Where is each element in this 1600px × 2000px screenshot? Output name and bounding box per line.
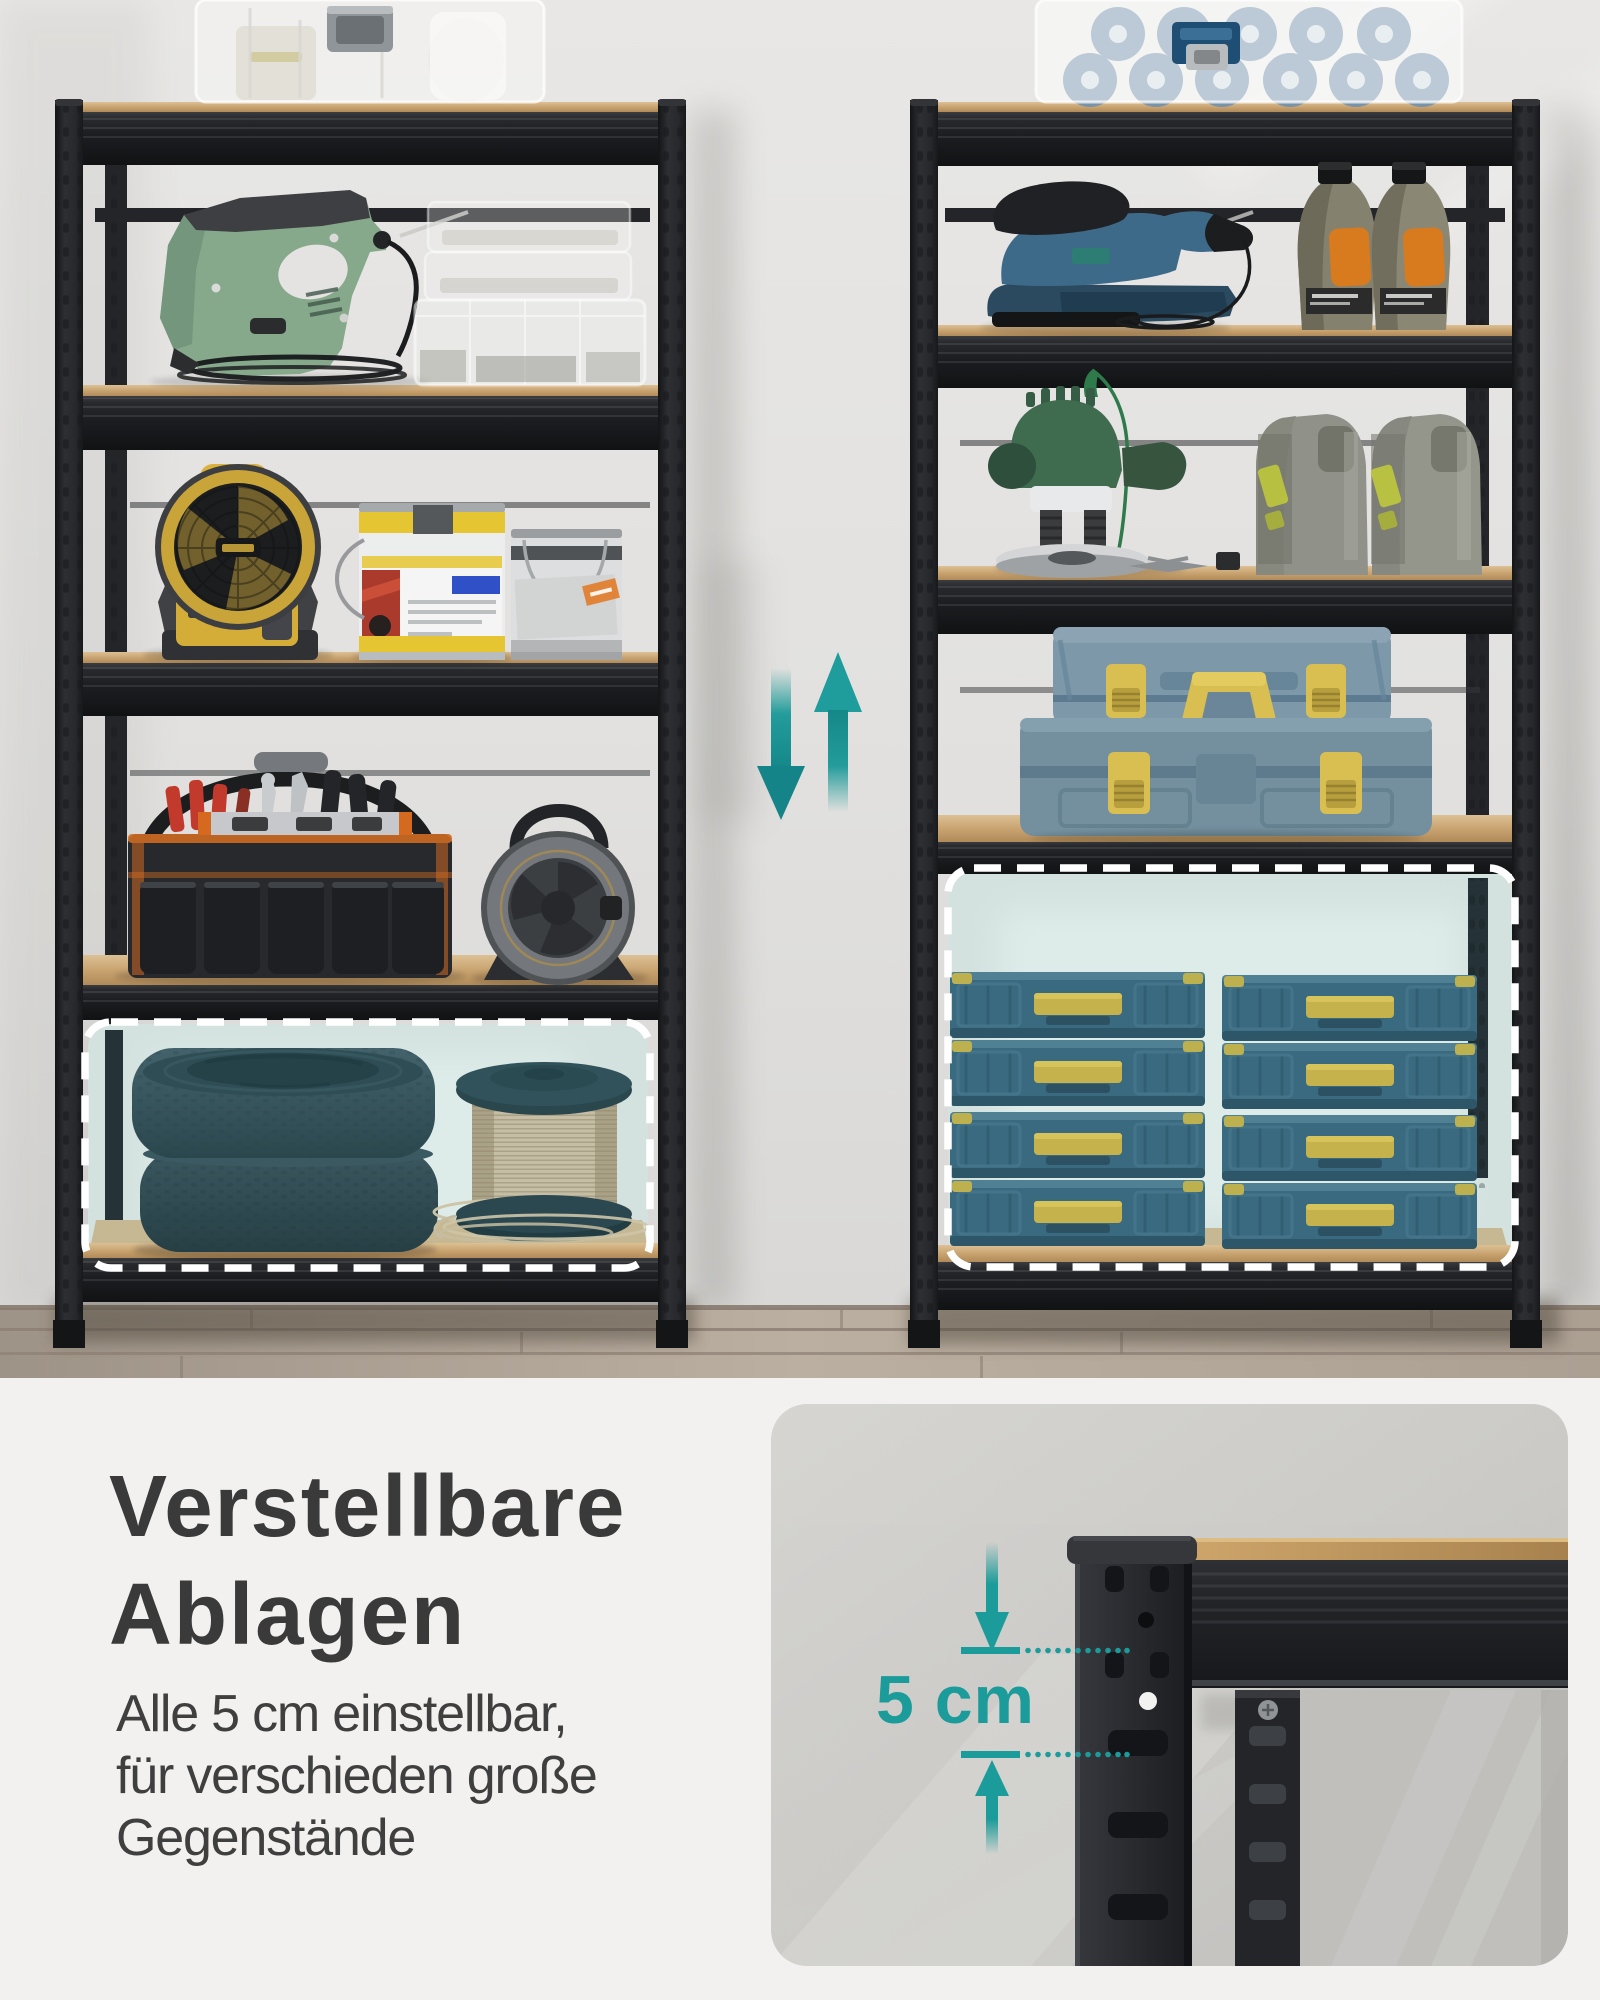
- svg-text:5 cm: 5 cm: [876, 1662, 1035, 1738]
